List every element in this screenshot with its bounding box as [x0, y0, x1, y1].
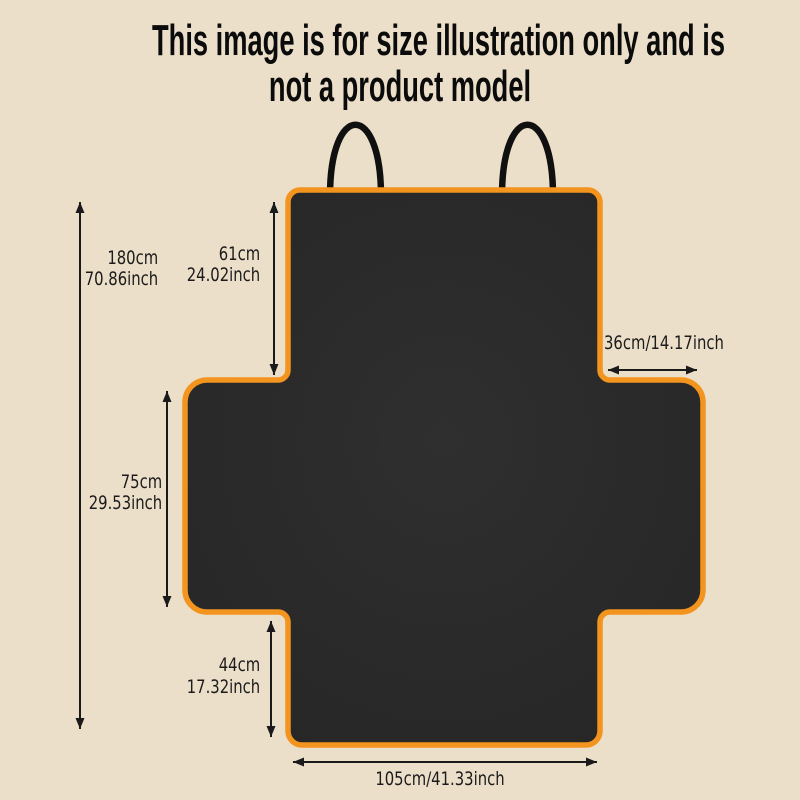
dimension-inch: 70.86inch: [85, 269, 158, 290]
dimension-label-flap-width: 36cm/14.17inch: [604, 333, 724, 354]
headrest-strap-loop-left-icon: [330, 125, 381, 196]
size-illustration-page: This image is for size illustration only…: [0, 0, 800, 800]
size-diagram: [0, 0, 800, 800]
dimension-cm: 180cm: [85, 248, 158, 269]
dimension-inch: 29.53inch: [89, 493, 162, 514]
dimension-label-front-height: 44cm 17.32inch: [187, 654, 260, 698]
headrest-strap-loop-right-icon: [502, 125, 553, 196]
dimension-cm: 61cm: [187, 244, 260, 265]
dimension-cm: 44cm: [187, 654, 260, 676]
dimension-inch: 24.02inch: [187, 265, 260, 286]
dimension-label-middle-height: 75cm 29.53inch: [89, 472, 162, 514]
dimension-label-back-height: 61cm 24.02inch: [187, 244, 260, 286]
dimension-cm: 75cm: [89, 472, 162, 493]
dimension-inch: 17.32inch: [187, 676, 260, 698]
dimension-label-total-height: 180cm 70.86inch: [85, 248, 158, 290]
dimension-combined: 36cm/14.17inch: [604, 333, 724, 354]
seat-cover-shape: [185, 190, 703, 745]
dimension-label-bottom-width: 105cm/41.33inch: [362, 769, 518, 790]
dimension-combined: 105cm/41.33inch: [362, 769, 518, 790]
